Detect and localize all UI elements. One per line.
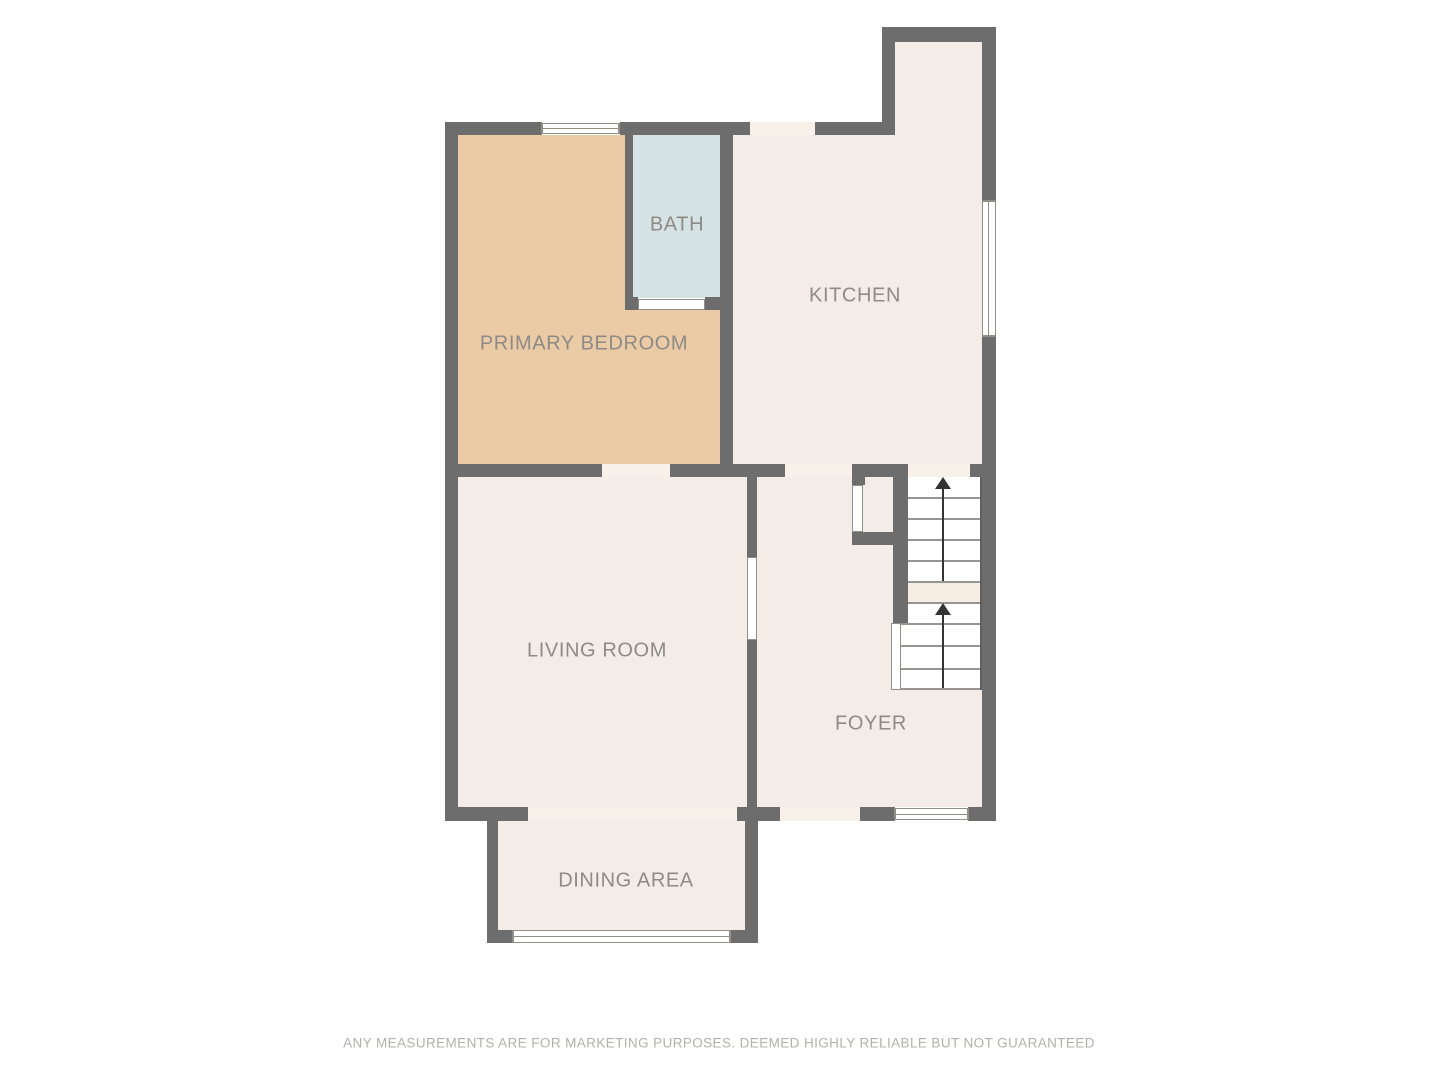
stair-lower-flight	[901, 623, 908, 690]
wall	[982, 27, 996, 200]
wall	[745, 821, 758, 943]
front-door-opening	[780, 807, 860, 821]
wall	[747, 640, 757, 821]
stair-tread	[908, 497, 980, 499]
stairs-up-arrow	[942, 613, 944, 688]
living-room-label: LIVING ROOM	[527, 640, 667, 663]
stair-tread	[908, 560, 980, 562]
bath-door	[638, 299, 705, 310]
wall	[860, 807, 895, 821]
wall	[982, 337, 996, 821]
wall	[747, 477, 757, 557]
wall	[737, 807, 780, 821]
wall	[625, 135, 633, 310]
stairs-up-arrow-icon	[935, 477, 951, 489]
wall	[970, 464, 982, 477]
stair-tread	[901, 688, 980, 690]
kitchen-foyer-doorway	[785, 464, 853, 477]
dining-area-label: DINING AREA	[558, 870, 694, 893]
bedroom-doorway	[602, 464, 670, 477]
stairs-up-arrow-icon	[935, 603, 951, 615]
wall	[882, 27, 996, 42]
stair-tread	[901, 645, 980, 647]
living-dining-opening	[528, 807, 737, 821]
wall	[445, 464, 602, 477]
bedroom-window	[541, 123, 620, 134]
wall	[445, 122, 458, 821]
stairwell-top-opening	[908, 464, 970, 477]
wall	[720, 133, 733, 477]
wall	[487, 821, 498, 943]
wall	[445, 122, 542, 135]
stairs-up-arrow	[942, 487, 944, 581]
stair-landing	[908, 582, 980, 602]
disclaimer-text: ANY MEASUREMENTS ARE FOR MARKETING PURPO…	[343, 1036, 1095, 1051]
primary-bedroom-label: PRIMARY BEDROOM	[480, 333, 688, 356]
dining-window	[512, 930, 731, 943]
stair-railing	[891, 623, 901, 690]
kitchen-top-doorway	[750, 122, 815, 135]
bath-label: BATH	[650, 214, 704, 237]
kitchen-window	[982, 200, 996, 337]
wall	[882, 27, 895, 135]
room-primary-bedroom	[458, 135, 625, 464]
stair-tread	[901, 623, 980, 625]
stair-tread	[901, 668, 980, 670]
wall	[852, 464, 865, 485]
kitchen-label: KITCHEN	[809, 285, 901, 308]
stair-tread	[908, 518, 980, 520]
wall	[893, 464, 908, 623]
floor-plan: PRIMARY BEDROOM BATH KITCHEN LIVING ROOM…	[0, 0, 1440, 1080]
foyer-window	[894, 808, 969, 820]
closet-door	[852, 485, 863, 532]
stair-tread	[908, 539, 980, 541]
living-foyer-door	[747, 557, 757, 640]
foyer-label: FOYER	[835, 713, 907, 736]
stair-tread	[908, 581, 980, 583]
room-kitchen-nook	[895, 42, 982, 135]
